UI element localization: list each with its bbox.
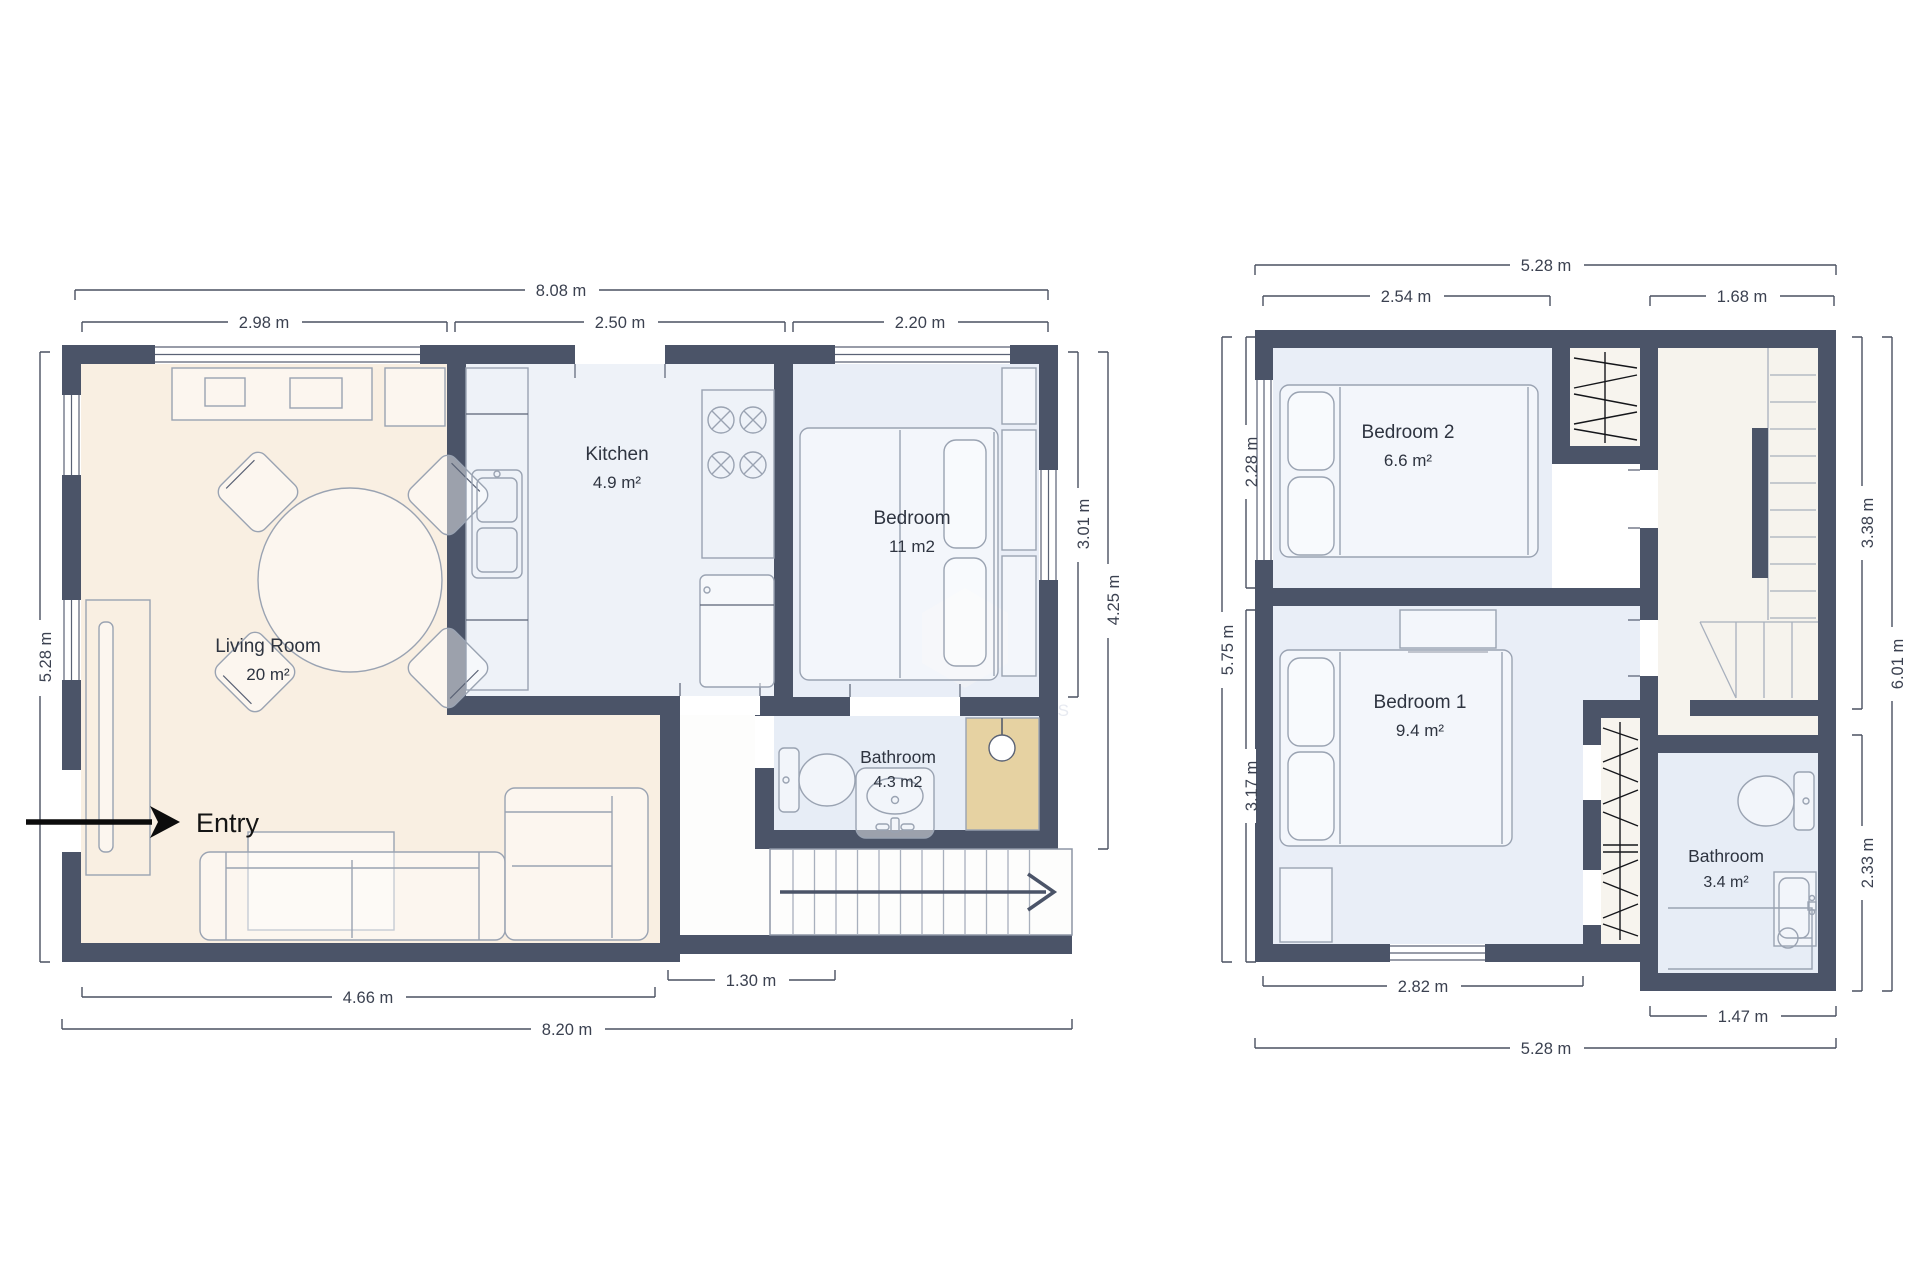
dim-top-living: 2.98 m xyxy=(239,314,289,332)
entry-door-opening xyxy=(62,770,81,852)
dim-left: 5.28 m xyxy=(37,632,55,682)
pillow xyxy=(1288,477,1334,555)
dim-right-bedroom: 3.01 m xyxy=(1075,499,1093,549)
door-bathroom xyxy=(755,716,774,768)
dim-bottom-total: 5.28 m xyxy=(1521,1040,1571,1058)
chaise-sofa xyxy=(505,788,648,940)
door-closet-lower xyxy=(1583,870,1601,925)
window-bedroom1-bottom xyxy=(1390,944,1485,962)
window-bedroom-top xyxy=(835,345,1010,364)
sofa xyxy=(200,852,505,940)
dim-bottom-bathroom: 1.47 m xyxy=(1718,1008,1768,1026)
window-living-left-lower xyxy=(62,600,81,680)
dim-bottom-living: 4.66 m xyxy=(343,989,393,1007)
dim-bottom-hall: 1.30 m xyxy=(726,972,776,990)
cabinet xyxy=(1280,868,1332,942)
upper-floor-plan: 5.28 m 2.54 m 1.68 m 5.75 m 2.28 m 3.17 … xyxy=(1212,255,1907,1058)
toilet-icon xyxy=(1738,772,1814,830)
bedroom-area: 11 m2 xyxy=(889,537,935,556)
bedroom2-area: 6.6 m² xyxy=(1384,451,1433,470)
dim-bottom-total: 8.20 m xyxy=(542,1021,592,1039)
dim-right-landing: 3.38 m xyxy=(1859,498,1877,548)
dim-left-total: 5.75 m xyxy=(1219,625,1237,675)
ground-stairs xyxy=(770,849,1072,935)
bathroom-title: Bathroom xyxy=(860,747,936,767)
dresser xyxy=(1400,610,1496,648)
wardrobe xyxy=(1002,556,1036,676)
dim-top-kitchen: 2.50 m xyxy=(595,314,645,332)
kitchen-area: 4.9 m² xyxy=(593,473,642,492)
dim-top-landing: 1.68 m xyxy=(1717,288,1767,306)
bathroom-area: 4.3 m2 xyxy=(874,774,923,791)
dim-top-bedroom: 2.20 m xyxy=(895,314,945,332)
window-bedroom-right xyxy=(1039,470,1058,580)
dim-right-bathroom: 2.33 m xyxy=(1859,838,1877,888)
living-room-area: 20 m² xyxy=(246,665,290,684)
window-living-top xyxy=(155,345,420,364)
dim-left-bedroom1: 3.17 m xyxy=(1243,761,1261,811)
nightstand xyxy=(1002,368,1036,424)
vanity-sink-icon xyxy=(1774,872,1816,946)
door-bedroom2 xyxy=(1628,470,1658,528)
living-room-title: Living Room xyxy=(215,636,321,657)
pillow xyxy=(1288,752,1334,840)
upper-bathroom-area: 3.4 m² xyxy=(1703,874,1749,891)
dim-right-total: 4.25 m xyxy=(1105,575,1123,625)
dim-top-total: 8.08 m xyxy=(536,282,586,300)
ground-floor-plan: JJ PROPERTIES xyxy=(26,280,1123,1039)
window-living-left-upper xyxy=(62,395,81,475)
landing-floor xyxy=(1658,348,1818,735)
cabinet xyxy=(385,368,445,426)
dim-left-bedroom2: 2.28 m xyxy=(1243,437,1261,487)
upper-bathroom-title: Bathroom xyxy=(1688,846,1764,866)
floorplan-image: JJ PROPERTIES xyxy=(0,0,1920,1280)
bedroom2-furniture xyxy=(1280,385,1538,557)
pillow xyxy=(1288,658,1334,746)
door-closet-upper xyxy=(1583,745,1601,800)
pillow xyxy=(944,558,986,666)
wardrobe xyxy=(1002,430,1036,550)
dim-bottom-bedroom1: 2.82 m xyxy=(1398,978,1448,996)
bedroom1-title: Bedroom 1 xyxy=(1374,692,1467,713)
bedroom-title: Bedroom xyxy=(873,508,950,529)
dim-right-total: 6.01 m xyxy=(1889,639,1907,689)
dim-top-bedroom2: 2.54 m xyxy=(1381,288,1431,306)
fridge xyxy=(700,575,774,687)
bedroom2-title: Bedroom 2 xyxy=(1362,422,1455,443)
floorplan-page: JJ PROPERTIES xyxy=(0,0,1920,1280)
pillow xyxy=(944,440,986,548)
bedroom1-area: 9.4 m² xyxy=(1396,721,1445,740)
dim-top-total: 5.28 m xyxy=(1521,257,1571,275)
entry-label: Entry xyxy=(196,808,260,838)
shower-icon xyxy=(966,718,1039,830)
pillow xyxy=(1288,392,1334,470)
kitchen-title: Kitchen xyxy=(585,444,648,465)
